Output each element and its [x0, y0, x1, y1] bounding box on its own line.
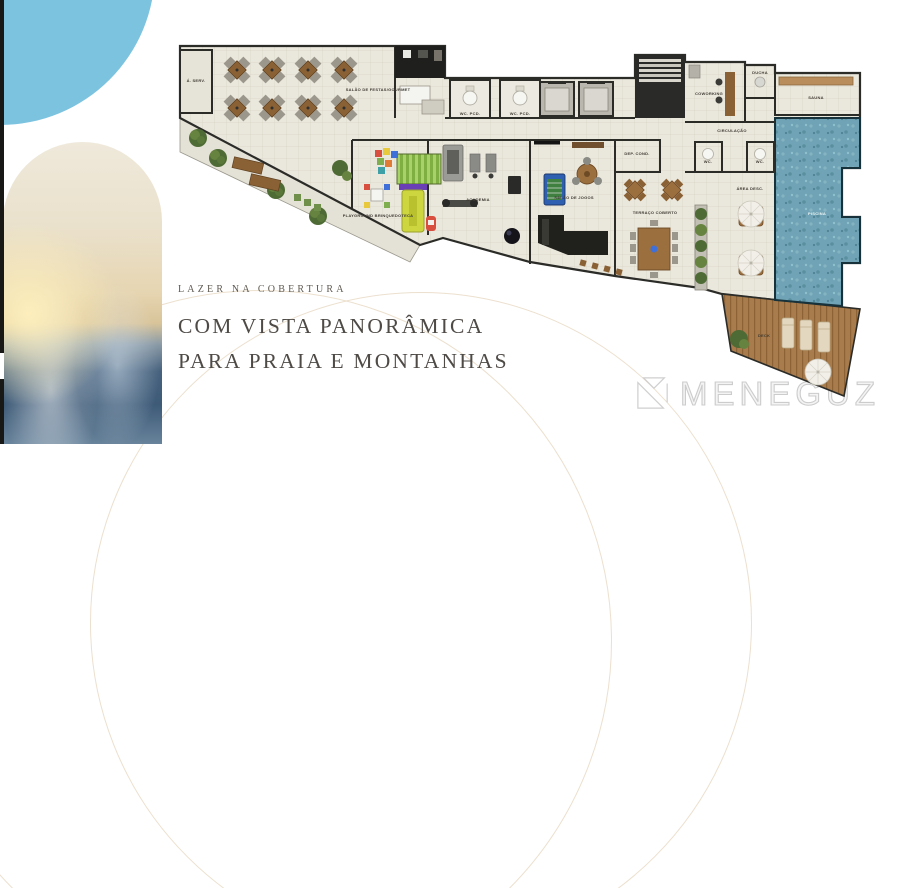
label-pool: PISCINA [808, 211, 826, 216]
label-games-room: SALÃO DE JOGOS [554, 195, 594, 200]
label-gym: ACADEMIA [466, 197, 490, 202]
left-edge-strip-gap [0, 353, 4, 379]
label-circulation: CIRCULAÇÃO [717, 128, 746, 133]
floorplan-svg: Á. SERV. SALÃO DE FESTAS/GOURMET WC. PCD… [178, 38, 862, 410]
stairwell [635, 55, 685, 118]
beach-photo-arch [3, 142, 162, 444]
deck-area [722, 294, 860, 396]
label-storage: DEP. COND. [624, 151, 649, 156]
label-covered-terrace: TERRAÇO COBERTO [633, 210, 678, 215]
label-wc-1: WC. [704, 159, 713, 164]
label-rest-area: ÁREA DESC. [736, 186, 763, 191]
floorplan: Á. SERV. SALÃO DE FESTAS/GOURMET WC. PCD… [178, 38, 862, 410]
label-deck: DECK [758, 333, 770, 338]
label-wc-pcd-2: WC. PCD. [510, 111, 530, 116]
blue-accent-circle [0, 0, 155, 125]
label-playground: PLAYGROUND BRINQUEDOTECA [343, 213, 414, 218]
label-party-hall: SALÃO DE FESTAS/GOURMET [346, 87, 411, 92]
label-wc-pcd-1: WC. PCD. [460, 111, 480, 116]
label-sauna: SAUNA [808, 95, 823, 100]
label-shower: DUCHA [752, 70, 768, 75]
label-coworking: COWORKING [695, 91, 723, 96]
label-wc-2: WC. [756, 159, 765, 164]
label-service: Á. SERV. [187, 78, 206, 83]
